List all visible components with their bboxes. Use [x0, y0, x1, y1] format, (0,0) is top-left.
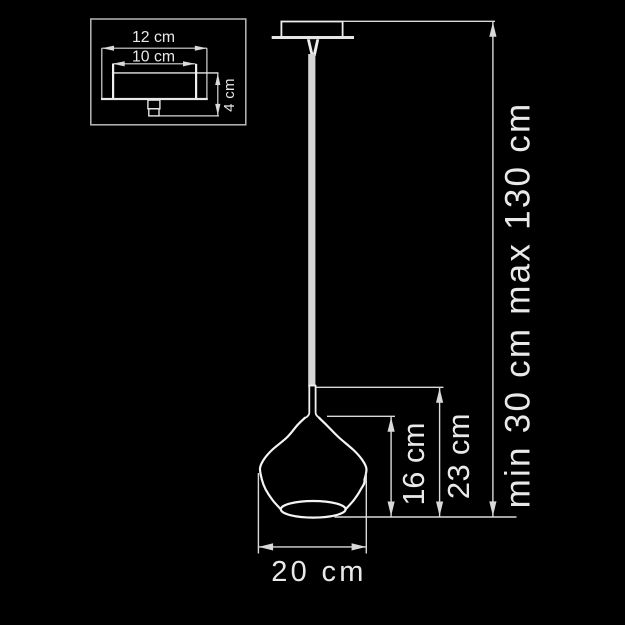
svg-text:20 cm: 20 cm: [271, 556, 366, 588]
svg-text:min 30 cm max 130 cm: min 30 cm max 130 cm: [498, 102, 537, 509]
svg-text:16 cm: 16 cm: [397, 422, 431, 505]
svg-text:10 cm: 10 cm: [132, 49, 175, 66]
svg-text:4 cm: 4 cm: [221, 78, 238, 112]
svg-text:12 cm: 12 cm: [132, 29, 175, 46]
svg-text:23 cm: 23 cm: [441, 413, 476, 499]
